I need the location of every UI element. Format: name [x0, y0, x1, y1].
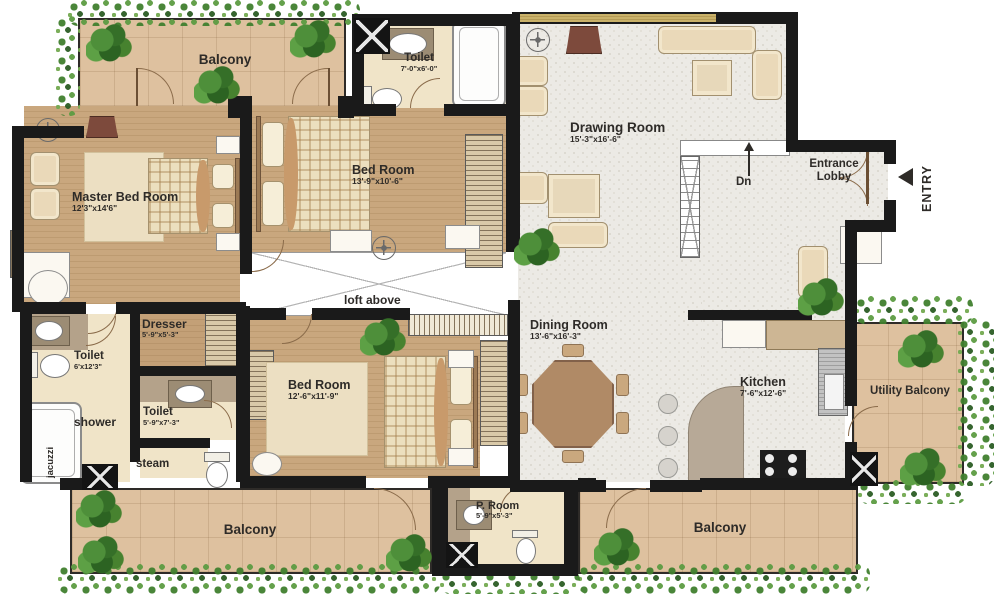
tv-cabinet	[86, 116, 118, 138]
pouf	[658, 426, 678, 446]
pillow	[262, 122, 284, 167]
room-label-drawing-room: Drawing Room 15'-3"x16'-6"	[570, 120, 665, 145]
steam-label: steam	[136, 458, 169, 471]
room-label-bedroom-bottom: Bed Room 12'-6"x11'-9"	[288, 378, 351, 402]
dining-chair	[562, 450, 584, 463]
coffee-table	[548, 174, 600, 218]
wc-bowl	[206, 462, 228, 488]
dining-chair	[616, 374, 629, 396]
shaft-box	[354, 18, 390, 54]
room-label-toilet-left: Toilet 6'x12'3"	[74, 350, 104, 371]
shaft-box	[446, 542, 478, 568]
pillow	[212, 164, 234, 189]
dining-chair	[616, 412, 629, 434]
room-label-balcony-bottom-left: Balcony	[180, 522, 320, 537]
plant	[78, 536, 124, 576]
room-label-toilet-top: Toilet 7'-0"x6'-0"	[386, 52, 452, 73]
greenery	[56, 16, 80, 116]
wall	[132, 438, 210, 448]
stove-burner	[788, 467, 797, 476]
window-band	[520, 14, 716, 22]
room-label-dresser: Dresser 5'-9"x5'-3"	[142, 318, 187, 340]
furniture-box	[445, 225, 480, 249]
furniture-box	[448, 448, 474, 466]
room-label-entrance-lobby: Entrance Lobby	[794, 158, 874, 184]
plant	[86, 24, 132, 64]
wall	[786, 140, 896, 152]
room-label-master-bedroom: Master Bed Room 12'3"x14'6"	[72, 190, 178, 214]
sofa	[658, 26, 756, 54]
plant	[798, 278, 844, 318]
bed-fold	[434, 358, 448, 466]
floor-plan: Balcony Master Bed Room 12'3"x14'6" Toil…	[0, 0, 1000, 600]
wall	[688, 310, 812, 320]
pouf	[658, 458, 678, 478]
door-leaf	[328, 68, 330, 106]
wc-bowl	[516, 538, 536, 564]
shaft-box	[82, 464, 118, 490]
ceiling-fan-icon	[526, 28, 550, 52]
room-label-utility-balcony: Utility Balcony	[868, 385, 952, 398]
wall	[884, 152, 896, 164]
sofa	[30, 188, 60, 220]
furniture-box	[330, 230, 372, 252]
plant	[194, 66, 240, 106]
wall	[786, 12, 798, 152]
greenery	[855, 296, 973, 324]
dining-chair	[562, 344, 584, 357]
wc-bowl	[40, 354, 70, 378]
stove-burner	[765, 467, 774, 476]
stair-landing	[680, 140, 790, 156]
shaft-box	[850, 452, 878, 486]
wall	[236, 306, 250, 482]
plant	[900, 448, 946, 488]
pouf	[658, 394, 678, 414]
room-label-kitchen: Kitchen 7'-6"x12'-6"	[740, 375, 786, 399]
furniture-box	[448, 350, 474, 368]
wash-basin	[35, 321, 63, 341]
kitchen-counter	[766, 320, 846, 350]
headboard	[256, 116, 261, 232]
wall	[240, 308, 286, 320]
greenery	[958, 318, 994, 486]
plant	[360, 318, 406, 358]
plant	[386, 534, 432, 574]
wall	[24, 302, 86, 314]
bathtub	[452, 20, 506, 108]
stool	[28, 270, 68, 306]
sofa	[752, 50, 782, 100]
room-label-toilet-mid: Toilet 5'-9"x7'-3"	[143, 406, 180, 427]
plant	[594, 528, 640, 568]
room-label-dining-room: Dining Room 13'-6"x16'-3"	[530, 318, 608, 342]
bed-fold	[196, 160, 210, 232]
wall	[700, 478, 858, 490]
sofa	[30, 152, 60, 186]
wc-tank	[512, 530, 538, 538]
coffee-table	[692, 60, 732, 96]
room-label-balcony-top: Balcony	[150, 52, 300, 67]
bed-fold	[284, 118, 298, 230]
wall	[845, 318, 857, 406]
wardrobe	[480, 340, 508, 446]
wall	[20, 312, 32, 482]
dn-arrow-icon	[744, 142, 754, 151]
room-label-balcony-bottom-right: Balcony	[655, 520, 785, 535]
wall	[508, 300, 520, 486]
wash-basin	[175, 385, 205, 403]
window	[408, 314, 508, 336]
wall	[116, 302, 246, 314]
ceiling-fan-icon	[372, 236, 396, 260]
dining-table	[532, 360, 614, 448]
wc-tank	[204, 452, 230, 462]
wall	[845, 220, 857, 322]
furniture-box	[216, 233, 240, 251]
plant	[76, 490, 122, 530]
kitchen-sink-basin	[824, 374, 844, 410]
room-label-p-room: P. Room 5'-9"x5'-3"	[476, 500, 519, 521]
wall	[240, 476, 366, 488]
greenery	[578, 564, 870, 594]
wall	[132, 366, 240, 376]
staircase	[680, 156, 700, 258]
stove-burner	[788, 454, 797, 463]
furniture-box	[722, 320, 766, 348]
loft-label: loft above	[344, 294, 401, 307]
pillow	[212, 203, 234, 228]
stairs-dn-label: Dn	[736, 176, 751, 189]
room-label-bedroom-top: Bed Room 13'-9"x10'-6"	[352, 163, 415, 187]
jacuzzi-label: jacuzzi	[46, 410, 57, 478]
wall	[506, 14, 520, 252]
door-leaf	[136, 68, 138, 106]
pillow	[450, 362, 472, 405]
plant	[898, 330, 944, 370]
rug	[266, 362, 368, 456]
stove-burner	[765, 454, 774, 463]
wall	[564, 482, 578, 576]
wall	[60, 478, 82, 490]
tv-cabinet	[566, 26, 602, 54]
wall	[578, 478, 596, 490]
wall	[352, 104, 396, 116]
wall	[12, 126, 24, 312]
stool	[252, 452, 282, 476]
pillow	[262, 181, 284, 226]
stove	[760, 450, 806, 480]
entry-arrow-icon	[898, 168, 913, 186]
shower-label: shower	[74, 416, 116, 429]
wall	[240, 104, 252, 274]
plant	[514, 228, 560, 268]
entry-label: ENTRY	[920, 146, 934, 212]
wall	[650, 480, 702, 492]
dn-arrow-line	[748, 150, 750, 176]
furniture-box	[216, 136, 240, 154]
